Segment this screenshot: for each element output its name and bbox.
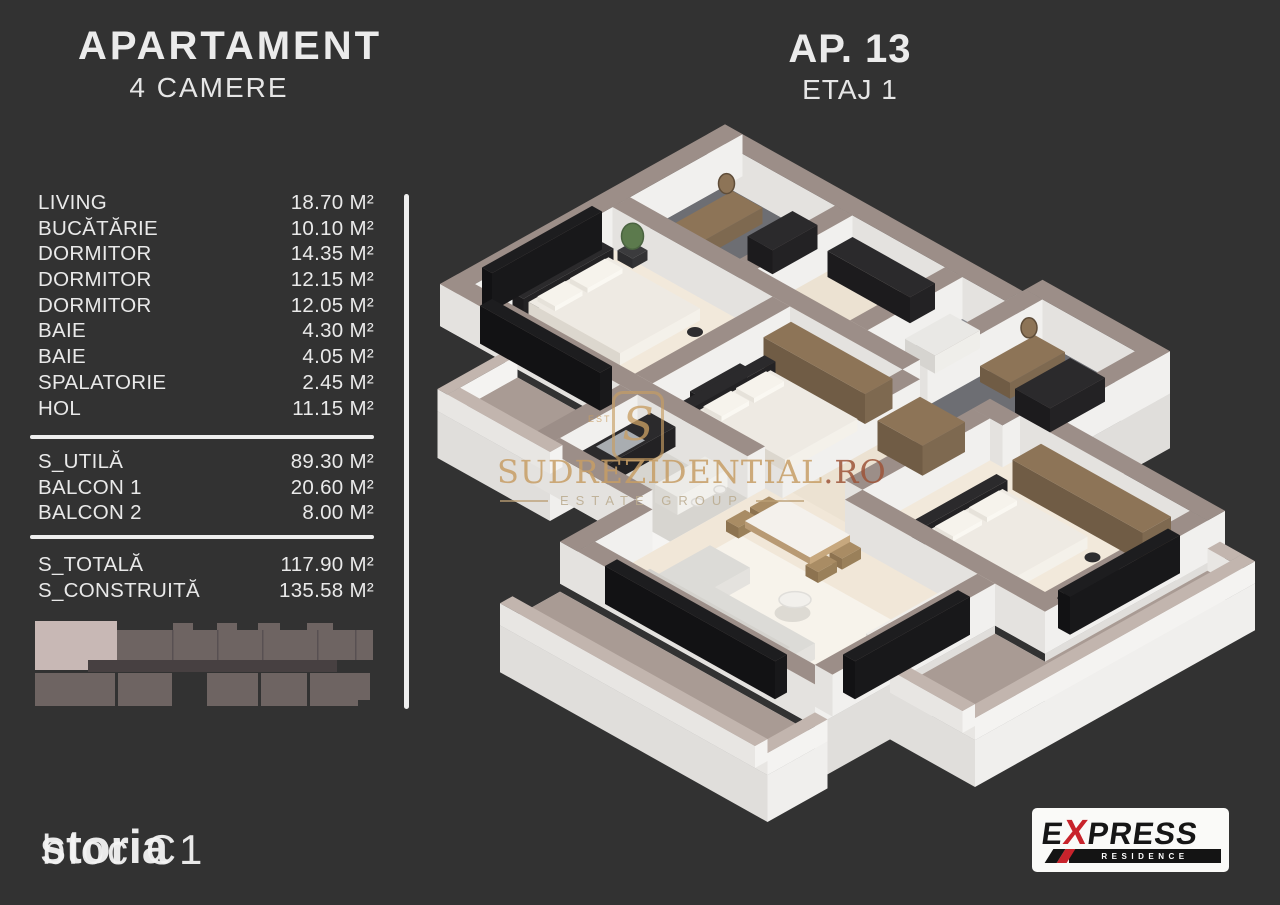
subtotal-label: S_UTILĂ: [38, 449, 123, 475]
room-area: 11.15 M²: [292, 396, 374, 422]
table-row: HOL11.15 M²: [38, 396, 374, 422]
lower-floor-units: [35, 673, 370, 706]
express-letters-press: PRESS: [1085, 816, 1200, 851]
subtotal-area: 20.60 M²: [291, 475, 374, 501]
upper-floor-units: [117, 623, 373, 660]
residence-text: RESIDENCE: [1101, 852, 1188, 861]
agency-logo-letter: S: [622, 401, 654, 447]
table-row: BAIE4.30 M²: [38, 318, 374, 344]
agency-logo-side-text: EST: [588, 414, 612, 424]
vertical-divider: [404, 194, 409, 709]
room-label: BUCĂTĂRIE: [38, 216, 158, 242]
room-label: HOL: [38, 396, 81, 422]
subtotal-label: BALCON 2: [38, 500, 142, 526]
page-title: APARTAMENT: [78, 24, 382, 69]
brand-tld: .RO: [823, 453, 887, 491]
table-row: LIVING18.70 M²: [38, 190, 374, 216]
room-label: SPALATORIE: [38, 370, 166, 396]
corridor: [88, 660, 337, 672]
express-residence-bar: RESIDENCE: [1069, 849, 1221, 863]
table-row: SPALATORIE2.45 M²: [38, 370, 374, 396]
table-row: DORMITOR14.35 M²: [38, 241, 374, 267]
agency-logo: EST S: [612, 391, 664, 461]
room-area-table: LIVING18.70 M² BUCĂTĂRIE10.10 M² DORMITO…: [38, 190, 374, 421]
flyer-page: APARTAMENT 4 CAMERE AP. 13 ETAJ 1 LIVING…: [0, 0, 1280, 905]
tagline-text: ESTATE GROUP: [560, 493, 744, 508]
subtotal-area: 89.30 M²: [291, 449, 374, 475]
brand-name: SUDREZIDENTIAL: [497, 453, 823, 491]
total-label: S_CONSTRUITĂ: [38, 578, 200, 604]
room-label: BAIE: [38, 318, 86, 344]
apartment-number: AP. 13: [760, 27, 940, 72]
table-row: BALCON 120.60 M²: [38, 475, 374, 501]
table-row: DORMITOR12.15 M²: [38, 267, 374, 293]
building-section-diagram: [35, 620, 375, 708]
subtotal-area: 8.00 M²: [302, 500, 374, 526]
storia-watermark: storia: [40, 819, 168, 874]
page-subtitle: 4 CAMERE: [78, 72, 340, 104]
table-row: S_TOTALĂ117.90 M²: [38, 552, 374, 578]
room-area: 10.10 M²: [291, 216, 374, 242]
room-area: 18.70 M²: [291, 190, 374, 216]
total-area: 135.58 M²: [279, 578, 374, 604]
total-table: S_TOTALĂ117.90 M² S_CONSTRUITĂ135.58 M²: [38, 552, 374, 603]
tagline-line-left: [500, 500, 548, 502]
room-area: 4.05 M²: [302, 344, 374, 370]
table-row: S_UTILĂ89.30 M²: [38, 449, 374, 475]
room-label: DORMITOR: [38, 267, 152, 293]
table-row: DORMITOR12.05 M²: [38, 293, 374, 319]
room-label: LIVING: [38, 190, 107, 216]
floor-number: ETAJ 1: [760, 74, 940, 106]
divider: [30, 535, 374, 539]
room-area: 4.30 M²: [302, 318, 374, 344]
table-row: S_CONSTRUITĂ135.58 M²: [38, 578, 374, 604]
subtotal-label: BALCON 1: [38, 475, 142, 501]
agency-watermark-brand: SUDREZIDENTIAL.RO: [497, 453, 887, 491]
tagline-line-right: [756, 500, 804, 502]
room-label: DORMITOR: [38, 293, 152, 319]
building-label-group: bloc C1 storia: [42, 826, 205, 882]
express-wordmark: EXPRESS: [1040, 815, 1201, 850]
table-row: BAIE4.05 M²: [38, 344, 374, 370]
total-label: S_TOTALĂ: [38, 552, 143, 578]
express-residence-logo: EXPRESS RESIDENCE: [1032, 808, 1229, 872]
room-area: 12.05 M²: [291, 293, 374, 319]
table-row: BALCON 28.00 M²: [38, 500, 374, 526]
divider: [30, 435, 374, 439]
total-area: 117.90 M²: [281, 552, 374, 578]
subtotal-table: S_UTILĂ89.30 M² BALCON 120.60 M² BALCON …: [38, 449, 374, 526]
room-label: DORMITOR: [38, 241, 152, 267]
room-area: 2.45 M²: [302, 370, 374, 396]
room-area: 12.15 M²: [291, 267, 374, 293]
room-area: 14.35 M²: [291, 241, 374, 267]
room-label: BAIE: [38, 344, 86, 370]
table-row: BUCĂTĂRIE10.10 M²: [38, 216, 374, 242]
agency-watermark-tagline: ESTATE GROUP: [500, 493, 804, 508]
